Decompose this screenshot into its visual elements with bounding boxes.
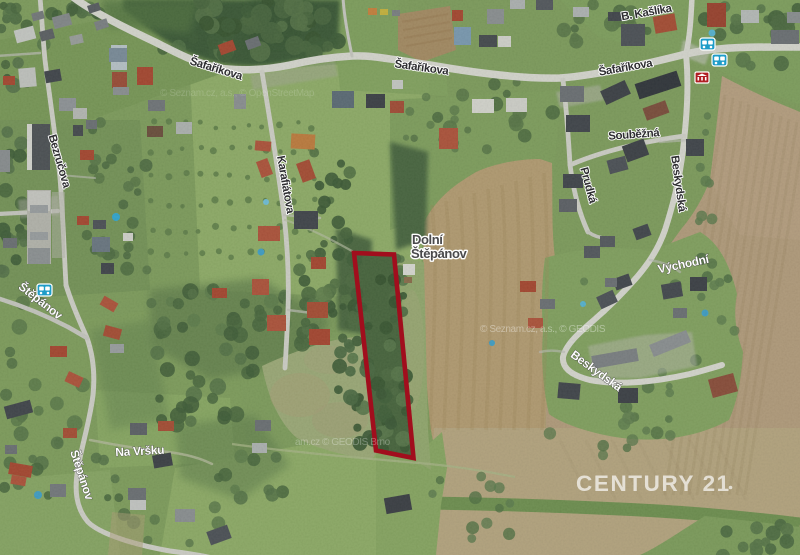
svg-text:© Seznam.cz, a.s., © OpenStree: © Seznam.cz, a.s., © OpenStreetMap [160,88,315,99]
svg-text:am.cz © GEODIS Brno: am.cz © GEODIS Brno [295,437,391,448]
svg-text:Štěpánov: Štěpánov [411,246,467,261]
svg-text:© Seznam.cz, a.s., © GEODIS: © Seznam.cz, a.s., © GEODIS [480,324,606,335]
svg-text:Dolní: Dolní [412,232,443,247]
svg-text:CENTURY 21: CENTURY 21 [576,471,731,496]
svg-text:Na Vršku: Na Vršku [115,443,165,460]
